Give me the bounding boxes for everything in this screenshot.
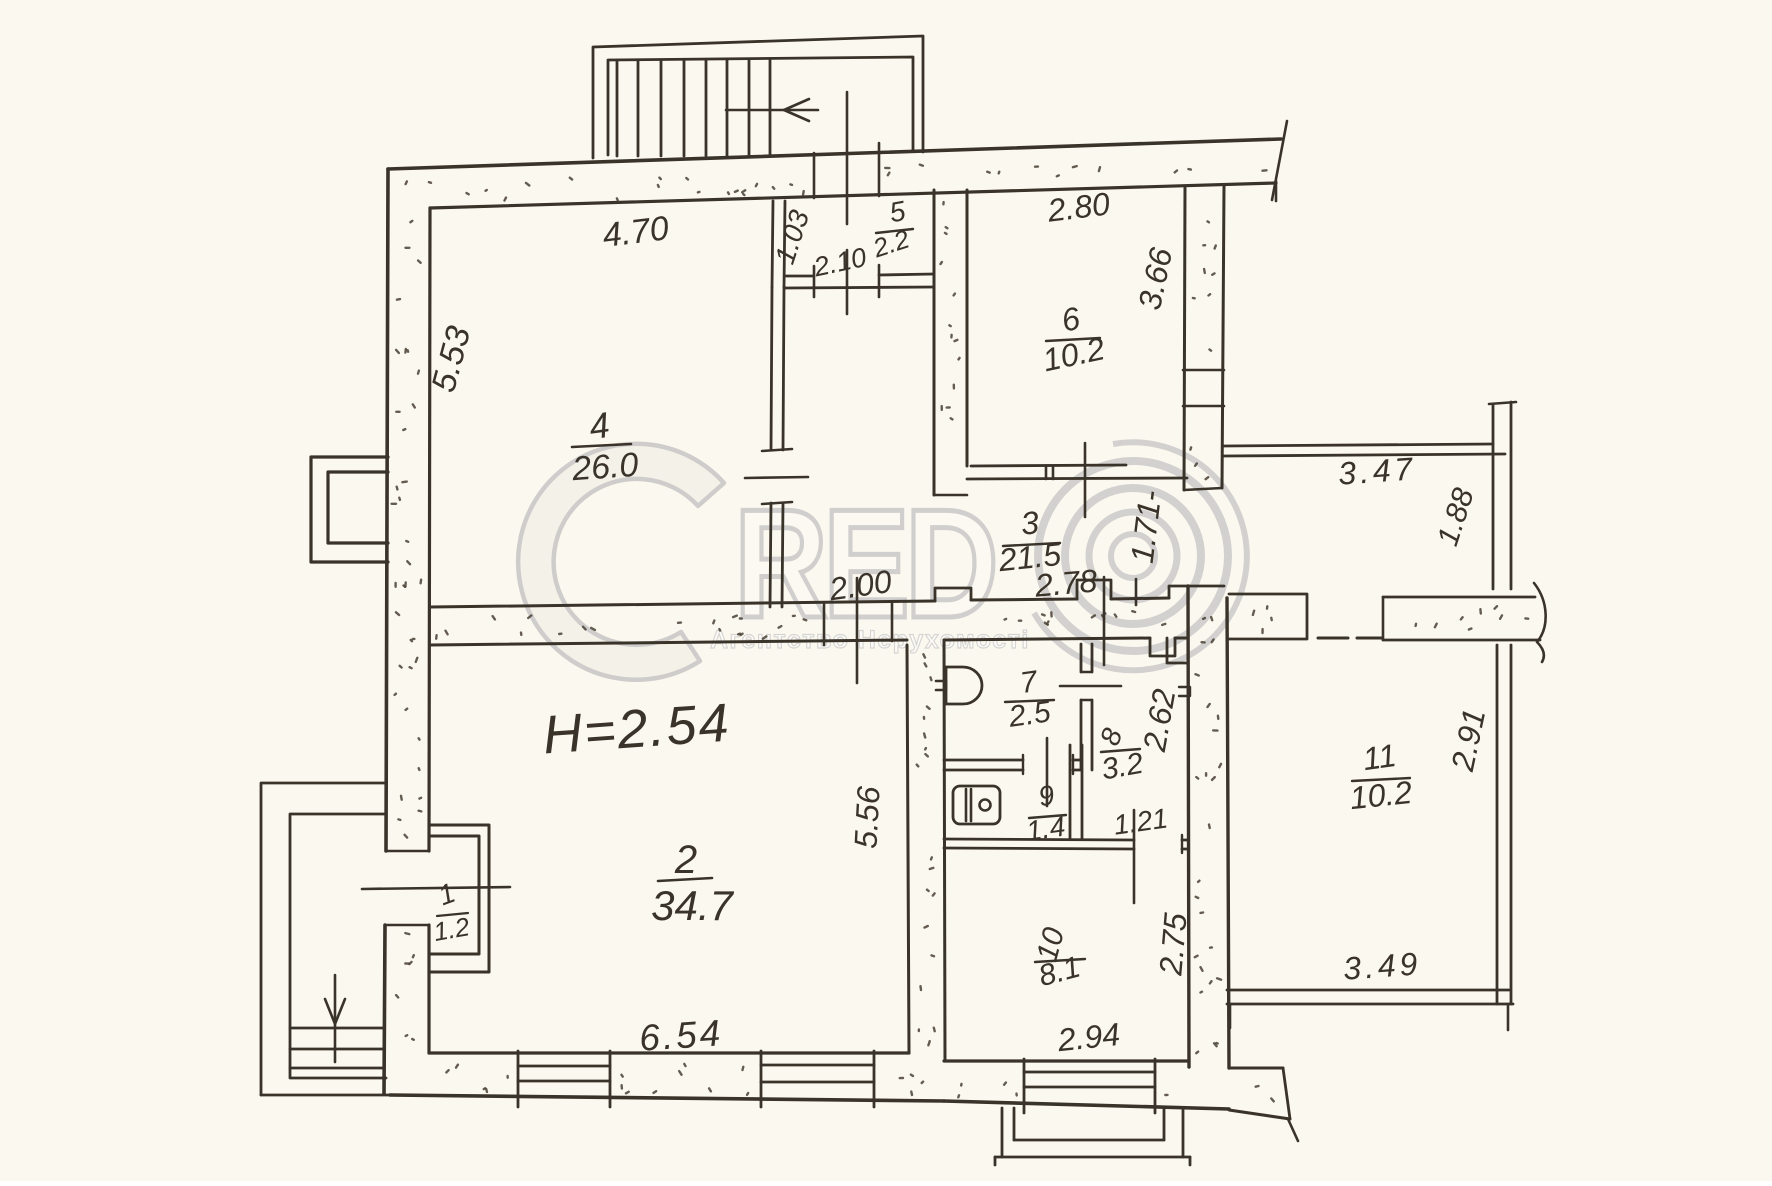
svg-text:2.5: 2.5: [1006, 695, 1053, 734]
svg-text:2.80: 2.80: [1045, 185, 1112, 228]
svg-text:3.47: 3.47: [1337, 450, 1418, 491]
svg-text:10.2: 10.2: [1348, 774, 1414, 816]
svg-text:6.54: 6.54: [638, 1012, 725, 1059]
svg-text:1.4: 1.4: [1024, 811, 1067, 847]
svg-text:11: 11: [1361, 737, 1399, 777]
svg-text:4.70: 4.70: [600, 209, 670, 255]
svg-text:34.7: 34.7: [651, 882, 734, 929]
svg-text:26.0: 26.0: [570, 446, 640, 489]
svg-text:2: 2: [674, 838, 697, 882]
svg-text:3.49: 3.49: [1342, 945, 1423, 986]
svg-text:2.78: 2.78: [1032, 562, 1098, 603]
svg-text:5.56: 5.56: [847, 785, 886, 849]
svg-text:1.2: 1.2: [431, 911, 472, 947]
svg-text:2.94: 2.94: [1055, 1016, 1122, 1058]
svg-text:2.75: 2.75: [1152, 911, 1193, 977]
